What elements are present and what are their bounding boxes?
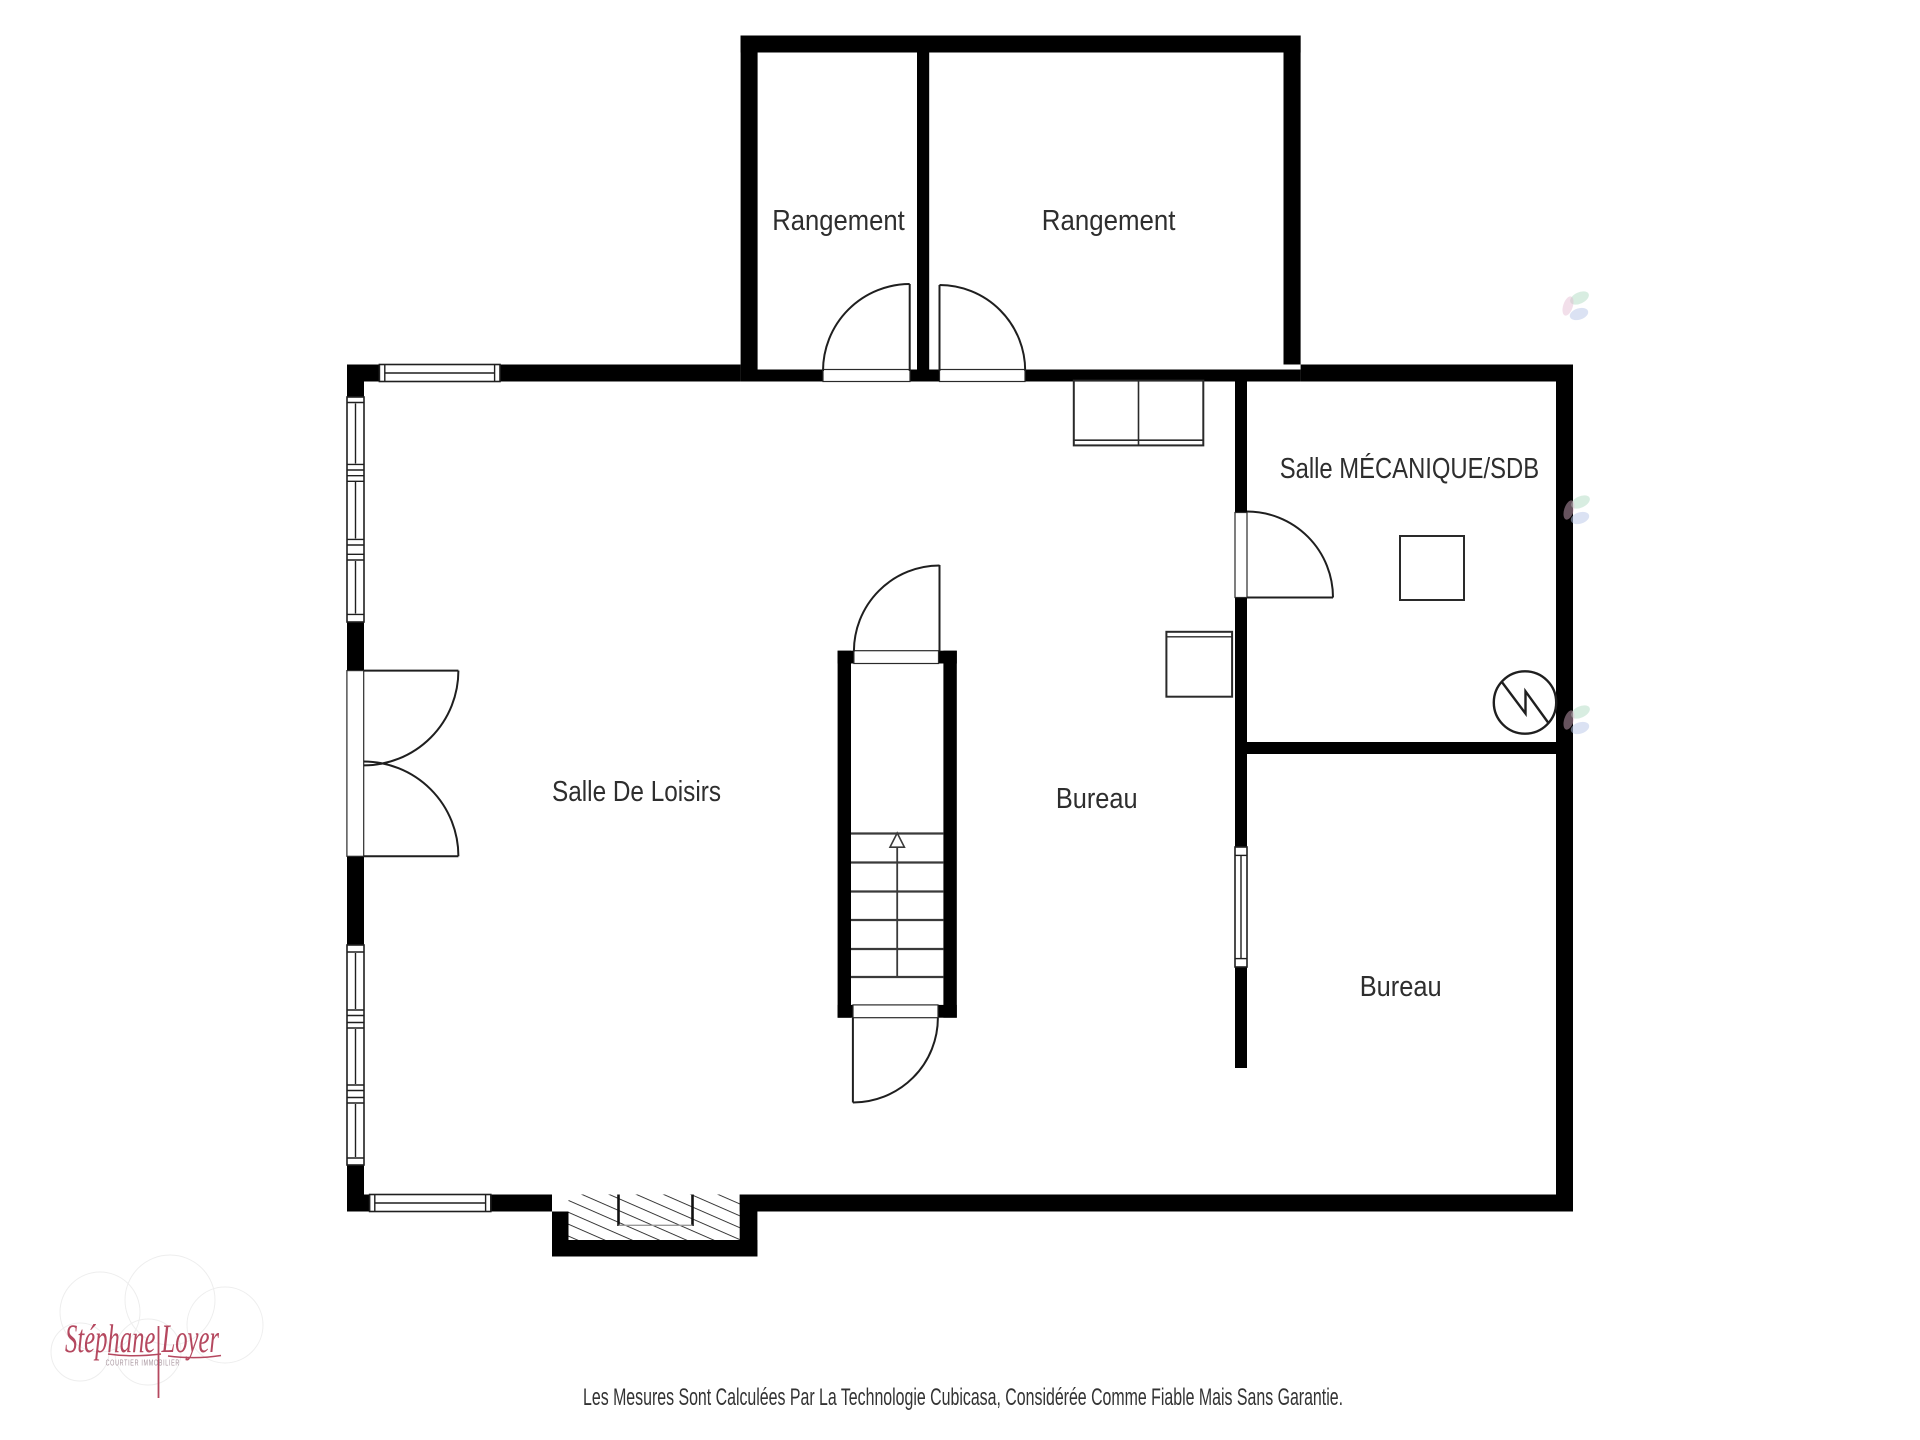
svg-text:Salle MÉCANIQUE/SDB: Salle MÉCANIQUE/SDB: [1280, 453, 1539, 485]
svg-text:Les Mesures Sont Calculées Par: Les Mesures Sont Calculées Par La Techno…: [583, 1384, 1343, 1411]
svg-text:Bureau: Bureau: [1360, 971, 1442, 1003]
svg-text:Rangement: Rangement: [1042, 205, 1176, 237]
svg-text:Bureau: Bureau: [1056, 783, 1138, 815]
svg-text:Salle De Loisirs: Salle De Loisirs: [552, 776, 721, 808]
svg-text:COURTIER IMMOBILIER: COURTIER IMMOBILIER: [106, 1359, 180, 1368]
svg-text:Stéphane Loyer: Stéphane Loyer: [65, 1316, 219, 1361]
svg-text:Rangement: Rangement: [772, 205, 904, 237]
